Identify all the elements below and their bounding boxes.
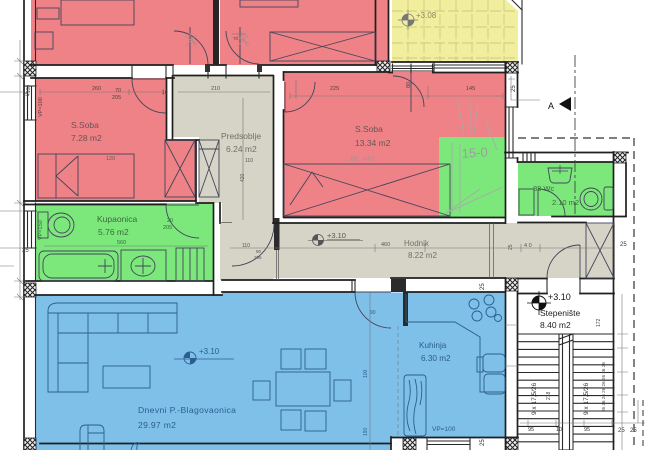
svg-text:8.40 m2: 8.40 m2 xyxy=(540,320,571,330)
svg-text:20: 20 xyxy=(167,218,173,224)
svg-text:VP=100: VP=100 xyxy=(38,97,44,117)
svg-text:4 0: 4 0 xyxy=(524,243,532,249)
svg-text:10: 10 xyxy=(556,427,562,433)
svg-text:420: 420 xyxy=(240,173,246,182)
svg-text:25: 25 xyxy=(618,428,625,434)
svg-text:+3.10: +3.10 xyxy=(199,347,220,356)
svg-text:205: 205 xyxy=(254,255,262,260)
svg-text:A: A xyxy=(548,101,554,111)
svg-text:Predsoblje: Predsoblje xyxy=(221,131,261,141)
svg-text:5.76 m2: 5.76 m2 xyxy=(98,227,129,237)
svg-text:460: 460 xyxy=(381,242,390,248)
svg-text:90: 90 xyxy=(370,310,376,316)
svg-text:218: 218 xyxy=(546,391,552,400)
svg-text:110: 110 xyxy=(245,158,253,164)
svg-text:29.97 m2: 29.97 m2 xyxy=(138,420,176,430)
svg-text:70: 70 xyxy=(115,88,121,94)
svg-text:15-0: 15-0 xyxy=(461,144,488,161)
svg-text:Kuhinja: Kuhinja xyxy=(419,341,447,350)
svg-text:120: 120 xyxy=(106,156,115,162)
svg-text:25: 25 xyxy=(511,85,517,92)
svg-text:6.24 m2: 6.24 m2 xyxy=(226,144,257,154)
svg-text:≈100: ≈100 xyxy=(26,85,32,96)
svg-text:Stepenište: Stepenište xyxy=(540,308,580,318)
svg-text:110: 110 xyxy=(242,243,250,249)
svg-text:∟60 440: ∟60 440 xyxy=(344,156,374,163)
svg-text:88 Wc: 88 Wc xyxy=(533,184,555,193)
svg-text:7.28 m2: 7.28 m2 xyxy=(71,133,102,143)
svg-text:Dnevni P.-Blagovaonica: Dnevni P.-Blagovaonica xyxy=(138,405,236,415)
svg-text:70: 70 xyxy=(233,36,239,41)
svg-text:560: 560 xyxy=(117,240,126,246)
svg-text:25: 25 xyxy=(480,283,486,290)
svg-text:+3.10: +3.10 xyxy=(327,231,346,240)
svg-text:Kupaonica: Kupaonica xyxy=(97,214,137,224)
svg-text:+3.08: +3.08 xyxy=(416,11,437,20)
svg-text:25: 25 xyxy=(480,439,486,446)
svg-text:9 x 17,5/26: 9 x 17,5/26 xyxy=(531,382,538,415)
svg-text:10: 10 xyxy=(162,90,168,96)
svg-text:6.30 m2: 6.30 m2 xyxy=(421,354,451,363)
svg-text:210: 210 xyxy=(211,86,220,92)
svg-text:145: 145 xyxy=(466,86,475,92)
svg-text:190: 190 xyxy=(363,427,369,436)
svg-text:205: 205 xyxy=(112,95,121,101)
svg-text:205: 205 xyxy=(163,225,172,231)
svg-text:VP=100: VP=100 xyxy=(432,426,456,433)
svg-text:26 26 26 26 26 26 26 26: 26 26 26 26 26 26 26 26 xyxy=(601,362,606,412)
svg-text:80: 80 xyxy=(406,82,412,88)
svg-text:S.Soba: S.Soba xyxy=(71,120,99,130)
svg-text:95: 95 xyxy=(528,427,534,433)
svg-text:225: 225 xyxy=(330,86,339,92)
svg-text:25: 25 xyxy=(508,244,514,250)
svg-text:25: 25 xyxy=(22,248,29,254)
svg-text:+3.10: +3.10 xyxy=(548,292,571,302)
svg-text:172: 172 xyxy=(596,318,602,327)
svg-text:260: 260 xyxy=(92,86,101,92)
svg-text:25: 25 xyxy=(620,242,627,248)
svg-text:13.34 m2: 13.34 m2 xyxy=(355,138,391,148)
svg-text:2.10 m2: 2.10 m2 xyxy=(552,198,579,207)
svg-text:9 x 17,5/26: 9 x 17,5/26 xyxy=(583,382,590,415)
svg-text:8.22 m2: 8.22 m2 xyxy=(408,251,437,260)
svg-text:95: 95 xyxy=(584,427,590,433)
svg-text:VP=150: VP=150 xyxy=(38,220,44,240)
svg-text:Hodnik: Hodnik xyxy=(404,239,430,248)
svg-text:90: 90 xyxy=(256,249,262,254)
svg-text:S.Soba: S.Soba xyxy=(355,124,383,134)
svg-text:100: 100 xyxy=(363,369,369,378)
